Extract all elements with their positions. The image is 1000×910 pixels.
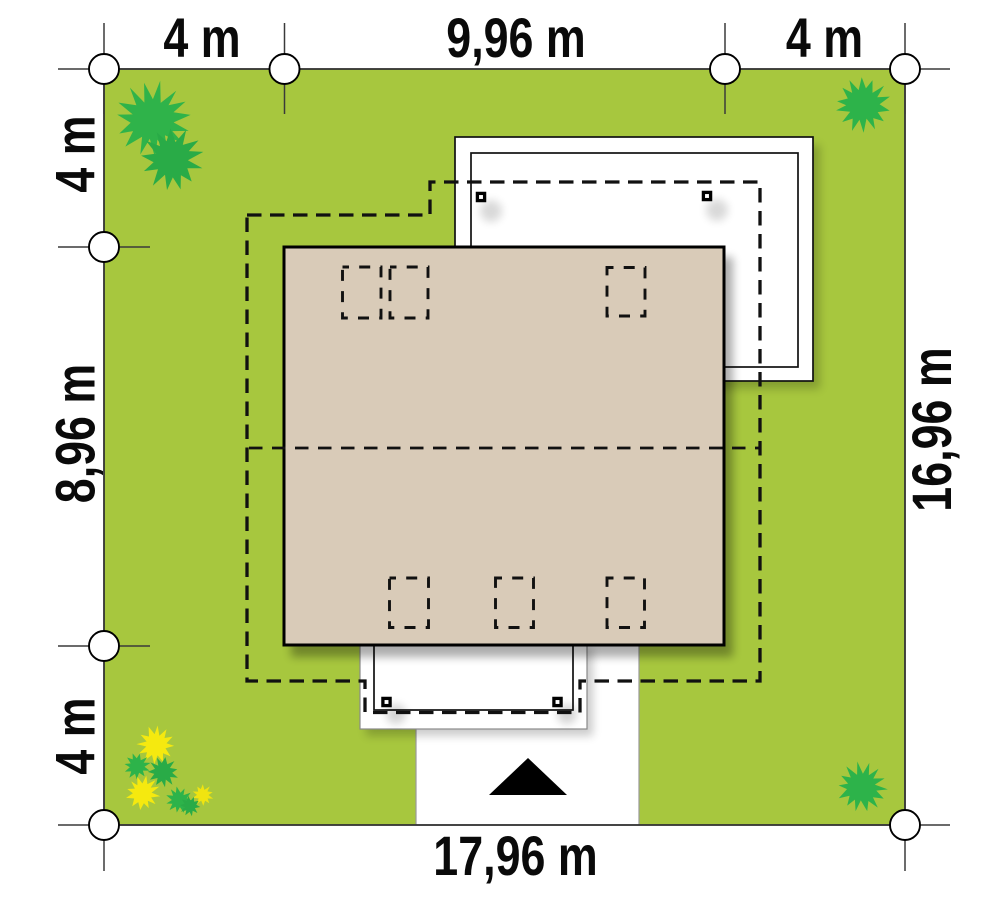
svg-text:8,96 m: 8,96 m — [44, 364, 107, 503]
svg-text:4 m: 4 m — [44, 697, 107, 774]
svg-text:4 m: 4 m — [163, 6, 240, 69]
svg-text:9,96 m: 9,96 m — [446, 6, 585, 69]
svg-text:4 m: 4 m — [44, 115, 107, 192]
svg-text:16,96 m: 16,96 m — [900, 347, 963, 511]
svg-text:17,96 m: 17,96 m — [433, 824, 597, 887]
svg-text:4 m: 4 m — [786, 6, 863, 69]
